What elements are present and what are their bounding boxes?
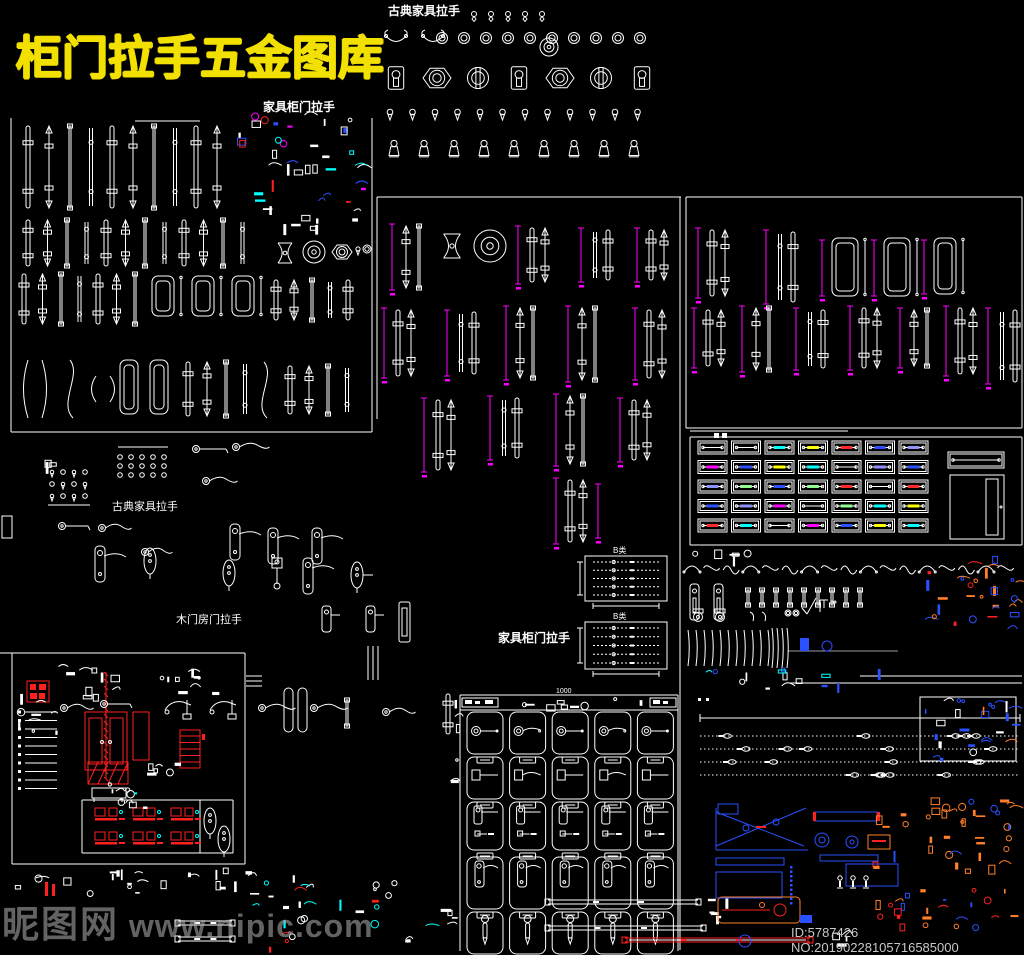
page-title: 柜门拉手五金图库 — [16, 22, 384, 88]
cad-canvas — [0, 0, 1024, 955]
watermark-url: www.nipic.com — [119, 908, 374, 944]
cad-sheet: 柜门拉手五金图库 古典家具拉手 家具柜门拉手 古典家具拉手 木门房门拉手 家具柜… — [0, 0, 1024, 955]
label-furniture-cabinet-handles: 家具柜门拉手 — [263, 98, 335, 115]
label-b-class-2: B类 — [613, 611, 626, 622]
label-classical-furniture-handles-top: 古典家具拉手 — [388, 2, 460, 19]
watermark: 昵图网 www.nipic.com — [2, 894, 374, 948]
watermark-site-name: 昵图网 — [2, 904, 119, 945]
label-b-class-1: B类 — [613, 545, 626, 556]
label-wood-door-handles: 木门房门拉手 — [176, 611, 242, 627]
label-grid-header-scale: 1000 — [556, 688, 572, 695]
label-classical-furniture-handles-mid: 古典家具拉手 — [112, 498, 178, 514]
image-id-text: ID:5787426 NO:20190228105716585000 — [791, 925, 1024, 955]
label-furniture-cabinet-handles-mid: 家具柜门拉手 — [498, 629, 570, 646]
